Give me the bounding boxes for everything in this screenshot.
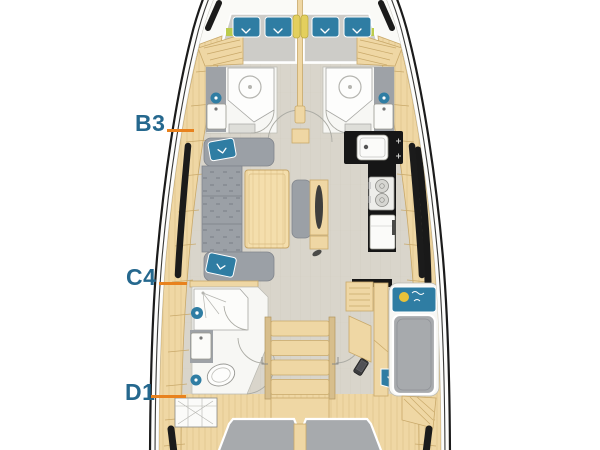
shower-head-dot <box>202 292 205 295</box>
bow-berth-pillows <box>226 15 374 38</box>
cabin-option-label-d1: D1 <box>125 381 155 404</box>
fridge <box>370 215 395 249</box>
toilet-marker-lower-dot <box>194 378 197 381</box>
head-forward-wall <box>190 281 258 287</box>
stair-rail-port <box>265 317 271 399</box>
shower-drain-center <box>348 85 352 89</box>
head-forward-starboard <box>323 67 394 133</box>
salon-entry-step <box>292 129 309 143</box>
yacht-layout-diagram: B3 C4 D1 <box>0 0 600 450</box>
stair-step-2 <box>271 341 329 356</box>
label-leader-line-b3 <box>167 129 194 132</box>
toilet-marker-dot <box>214 96 217 99</box>
table-grain <box>245 170 289 248</box>
faucet-icon <box>214 107 217 110</box>
stair-step-3 <box>271 360 329 375</box>
faucet-icon <box>199 336 202 339</box>
floor-plan-svg <box>0 0 600 450</box>
burner-2 <box>376 194 389 207</box>
pillow-1 <box>233 17 260 37</box>
faucet-icon <box>382 107 385 110</box>
sun-icon <box>399 292 409 302</box>
stowage-locker <box>175 398 217 427</box>
aft-berth-partition <box>294 424 306 450</box>
burner-1 <box>376 180 389 193</box>
cabin-option-label-b3: B3 <box>135 112 165 135</box>
pillow-2 <box>265 17 292 37</box>
vanity-unit <box>229 124 255 133</box>
single-berth-mattress <box>393 315 435 394</box>
stove-knob-1 <box>369 182 372 189</box>
shelf-unit <box>346 282 373 311</box>
berth-pillow <box>392 287 436 312</box>
sofa-pillow-forward <box>208 138 237 161</box>
fridge-handle <box>392 220 395 235</box>
salon-bench-seat <box>292 180 311 238</box>
toilet-marker-dot <box>382 96 385 99</box>
head-forward-port <box>206 67 277 133</box>
toilet-marker-upper-dot <box>195 311 198 314</box>
salon-table-group <box>245 170 328 258</box>
folded-table-leaf <box>315 185 323 229</box>
galley-sink <box>357 135 388 160</box>
shower-stall <box>194 289 248 330</box>
aft-hull-window-starboard <box>426 429 429 450</box>
stair-step-4 <box>271 380 329 395</box>
cabinet-drawer <box>310 236 328 249</box>
cabin-option-label-c4: C4 <box>126 266 156 289</box>
pillow-4 <box>344 17 371 37</box>
shower-drain-center <box>248 85 252 89</box>
stair-rail-starboard <box>329 317 335 399</box>
label-leader-line-d1 <box>151 395 186 398</box>
stair-step-1 <box>271 321 329 336</box>
sofa-stitch-texture <box>202 166 242 252</box>
pillow-3 <box>312 17 339 37</box>
mast-post <box>295 106 305 123</box>
faucet-icon <box>364 145 368 149</box>
label-leader-line-c4 <box>159 282 187 285</box>
stove-knob-2 <box>369 196 372 203</box>
aft-hull-window-port <box>171 429 174 450</box>
